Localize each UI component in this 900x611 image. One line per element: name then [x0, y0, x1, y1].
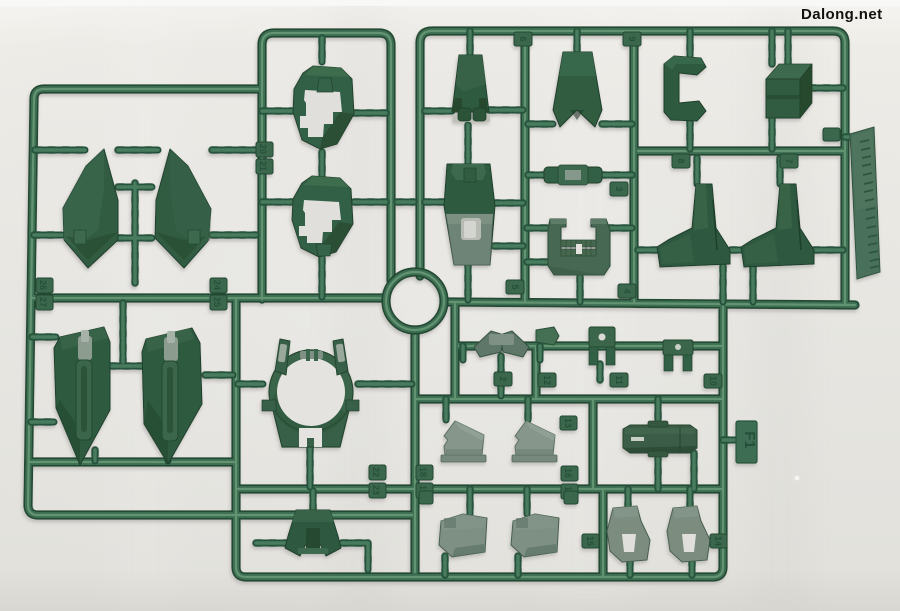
- svg-text:27: 27: [38, 297, 48, 307]
- svg-text:25: 25: [212, 297, 222, 307]
- svg-text:12: 12: [542, 375, 552, 385]
- svg-text:4: 4: [622, 288, 632, 293]
- svg-text:7: 7: [784, 158, 794, 163]
- svg-text:2: 2: [498, 376, 508, 381]
- svg-text:10: 10: [708, 376, 718, 386]
- svg-text:3: 3: [614, 186, 624, 191]
- svg-text:21: 21: [258, 161, 268, 171]
- svg-text:6: 6: [518, 36, 528, 41]
- svg-text:20: 20: [258, 144, 268, 154]
- svg-text:8: 8: [676, 158, 686, 163]
- svg-text:13: 13: [563, 418, 573, 428]
- svg-text:22: 22: [371, 467, 381, 477]
- svg-text:Dalong.net: Dalong.net: [801, 6, 883, 23]
- svg-text:5: 5: [510, 284, 520, 289]
- svg-text:24: 24: [212, 280, 222, 290]
- svg-text:15: 15: [585, 536, 595, 546]
- svg-text:23: 23: [371, 485, 381, 495]
- svg-text:9: 9: [627, 36, 637, 41]
- svg-text:11: 11: [614, 375, 624, 385]
- svg-text:F1: F1: [741, 431, 758, 449]
- svg-text:16: 16: [563, 468, 573, 478]
- svg-text:26: 26: [38, 280, 48, 290]
- svg-text:18: 18: [418, 467, 428, 477]
- svg-text:14: 14: [713, 536, 723, 546]
